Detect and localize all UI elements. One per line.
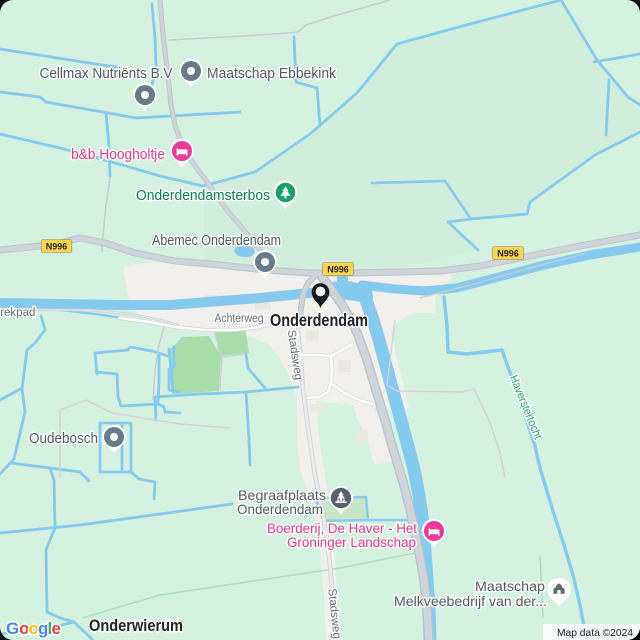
svg-text:Map data ©2024: Map data ©2024 (557, 627, 633, 639)
svg-text:Onderdendamsterbos: Onderdendamsterbos (136, 188, 270, 204)
svg-text:Abemec Onderdendam: Abemec Onderdendam (152, 233, 281, 249)
svg-text:Groninger Landschap: Groninger Landschap (287, 534, 416, 550)
svg-text:Cellmax Nutriënts B.V: Cellmax Nutriënts B.V (40, 66, 173, 82)
svg-text:Melkveebedrijf van der...: Melkveebedrijf van der... (394, 593, 547, 609)
svg-text:Maatschap Ebbekink: Maatschap Ebbekink (207, 66, 337, 82)
svg-text:b&b Hoogholtje: b&b Hoogholtje (71, 147, 165, 163)
svg-text:Onderdendam: Onderdendam (270, 310, 368, 330)
svg-text:e: e (52, 619, 61, 638)
svg-text:Maatschap: Maatschap (475, 578, 545, 594)
svg-text:Onderdendam: Onderdendam (237, 501, 323, 517)
svg-text:Achterweg: Achterweg (215, 313, 264, 325)
svg-text:G: G (6, 619, 19, 638)
svg-text:Onderwierum: Onderwierum (89, 616, 183, 635)
svg-text:trekpad: trekpad (0, 307, 35, 319)
svg-text:Oudebosch: Oudebosch (29, 430, 98, 447)
